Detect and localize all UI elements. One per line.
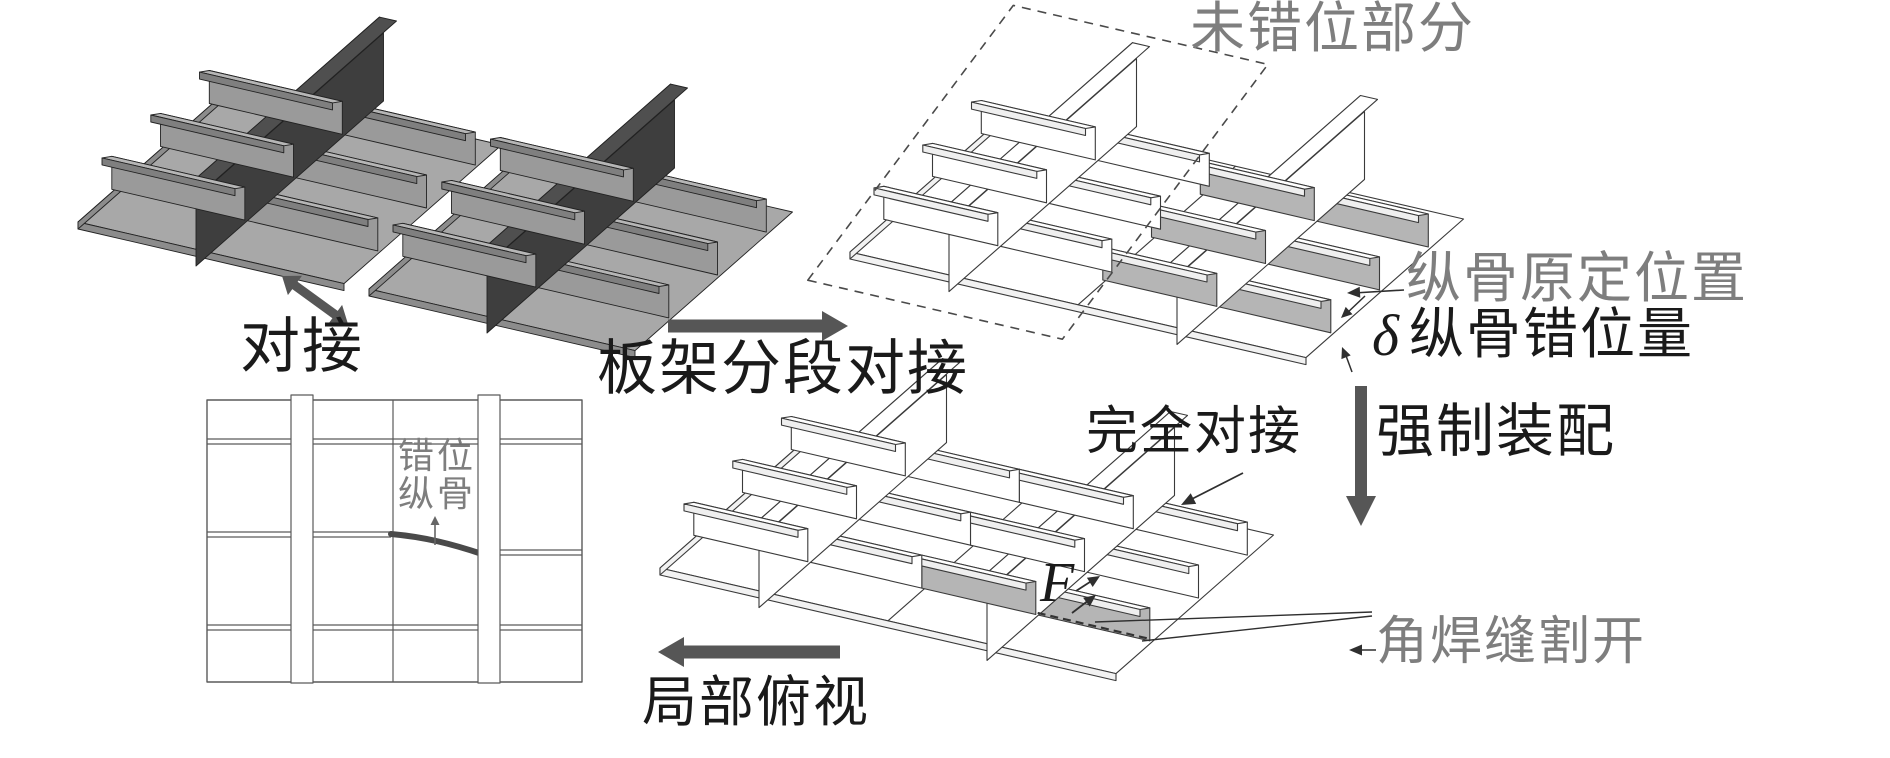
unmisaligned-part-label: 未错位部分 <box>1190 0 1475 58</box>
stiffener-original-position-label: 纵骨原定位置 <box>1406 250 1748 308</box>
joined-panel-misaligned <box>808 5 1464 364</box>
misaligned-stiffener-line1: 错位 <box>398 438 476 476</box>
panel-section-butt-label: 板架分段对接 <box>597 338 969 401</box>
diagram-canvas: 对接 板架分段对接 未错位部分 纵骨原定位置 δ 纵骨错位量 强制装配 完全对接… <box>0 0 1890 758</box>
local-top-view-grid <box>207 395 582 683</box>
local-top-view-label: 局部俯视 <box>642 674 870 732</box>
solid-panels-figure <box>78 17 793 358</box>
fillet-weld-cut-label: 角焊缝割开 <box>1376 616 1646 671</box>
stiffener-misalignment-label: δ 纵骨错位量 <box>1372 306 1694 367</box>
stiffener-misalignment-text: 纵骨错位量 <box>1409 306 1694 364</box>
butt-join-label: 对接 <box>240 316 364 379</box>
force-symbol-label: F <box>1040 554 1076 613</box>
forced-assembly-label: 强制装配 <box>1376 402 1616 463</box>
delta-symbol: δ <box>1372 306 1401 367</box>
misaligned-stiffener-line2: 纵骨 <box>398 476 476 514</box>
misaligned-stiffener-label: 错位 纵骨 <box>398 438 476 514</box>
complete-butt-label: 完全对接 <box>1086 406 1302 461</box>
